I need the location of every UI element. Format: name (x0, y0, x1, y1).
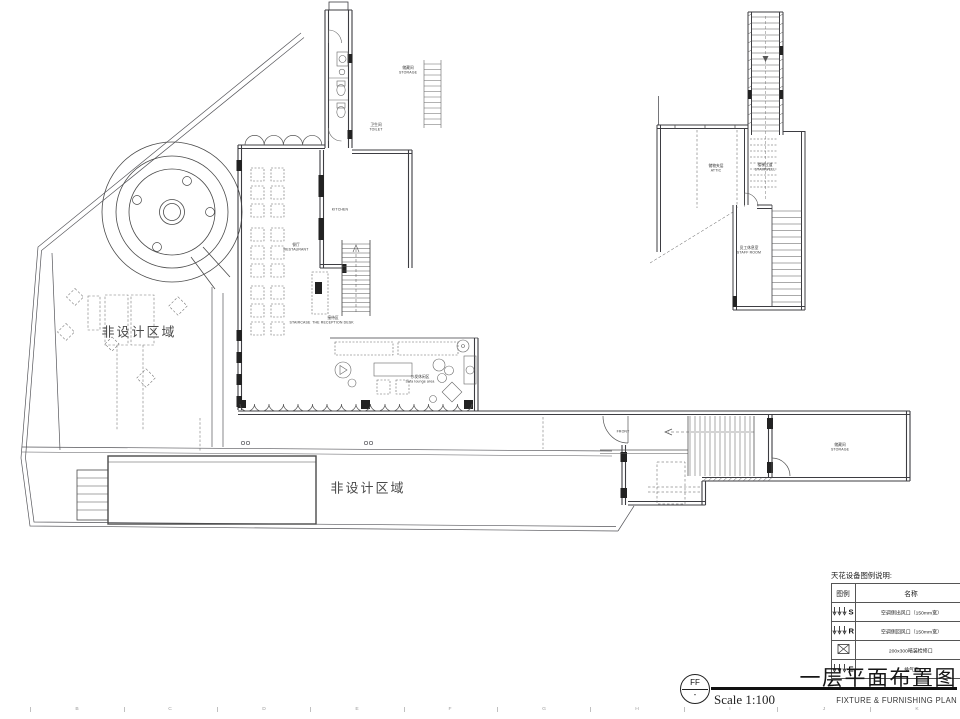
building-walls (238, 2, 910, 505)
grid-letter: J (823, 706, 825, 712)
grid-letter: G (542, 706, 546, 712)
legend-row-access-panel: 200x300暗装检修口 (832, 641, 960, 660)
corridor-doors (603, 416, 790, 476)
legend-row-supply: S 空调侧出风口（150mm宽） (832, 603, 960, 622)
mezzanine-plan-walls (657, 12, 805, 310)
circular-feature (102, 142, 242, 289)
return-air-icon (832, 626, 847, 635)
folding-door-arcs (245, 135, 322, 145)
grid-letter: B (75, 706, 78, 712)
grid-letter: H (635, 706, 639, 712)
drawing-title-en: FIXTURE & FURNISHING PLAN (806, 695, 957, 705)
label-restaurant: 餐厅 RESTAURANT (284, 242, 309, 251)
legend-header-symbol: 图例 (836, 589, 850, 599)
label-stairwell: 楼梯过道 STAIRWELL (755, 162, 776, 171)
legend-header-name: 名称 (904, 589, 918, 599)
toilet-fixtures (329, 30, 349, 141)
label-staircase: STAIRCASE (290, 321, 311, 326)
wall-fills (237, 54, 774, 498)
label-reception: 接待区 THE RECEPTION DESK (312, 315, 354, 324)
legend-row-return: R 空调侧回风口（150mm宽） (832, 622, 960, 641)
mezzanine-plan-details (650, 14, 802, 307)
ruler-tick (124, 707, 125, 712)
ruler-tick (497, 707, 498, 712)
label-kitchen: KITCHEN (332, 208, 348, 213)
tag-top: FF (690, 679, 700, 687)
exterior-ladder (424, 60, 441, 128)
grid-letter: F (448, 706, 451, 712)
ruler-tick (404, 707, 405, 712)
awning-scallops (240, 404, 472, 411)
label-non-design-bottom: 非设计区域 (330, 478, 405, 497)
terrace-furniture (58, 289, 543, 452)
tag-bottom: - (694, 691, 697, 699)
drawing-scale: Scale 1:100 (714, 692, 775, 708)
ruler-tick (217, 707, 218, 712)
label-storage-right: 储藏间 STORAGE (831, 442, 849, 451)
grid-letter: I (729, 706, 730, 712)
label-toilet: 卫生间 TOILET (369, 122, 382, 131)
label-sofa-lounge: 沙发休闲区 Sofa lounge area (405, 374, 434, 383)
main-staircase (342, 240, 370, 316)
label-storage-top: 储藏间 STORAGE (399, 65, 417, 74)
label-staff-room: 员工休息室 STAFF ROOM (737, 245, 761, 254)
pool (77, 456, 316, 524)
label-non-design-left: 非设计区域 (101, 322, 176, 341)
supply-air-icon (832, 607, 847, 616)
ruler-tick (590, 707, 591, 712)
grid-letter: E (355, 706, 358, 712)
grid-letter: K (915, 706, 918, 712)
restaurant-tables (251, 168, 284, 335)
drawing-sheet: { "page": {"background": "#ffffff", "ink… (0, 0, 960, 719)
grid-letter: C (168, 706, 172, 712)
title-rule (711, 687, 957, 690)
ruler-tick (310, 707, 311, 712)
ruler-tick (30, 707, 31, 712)
label-attic: 储物夹层 ATTIC (709, 163, 724, 172)
ruler-tick (684, 707, 685, 712)
ruler-tick (870, 707, 871, 712)
grid-letter: D (262, 706, 266, 712)
floor-plan-drawing (0, 0, 960, 719)
legend-title: 天花设备图例说明: (831, 570, 938, 580)
ruler-tick (777, 707, 778, 712)
access-panel-icon (837, 644, 850, 654)
label-front-door: FRONT (617, 430, 630, 435)
sofa-lounge-furniture (335, 340, 476, 403)
